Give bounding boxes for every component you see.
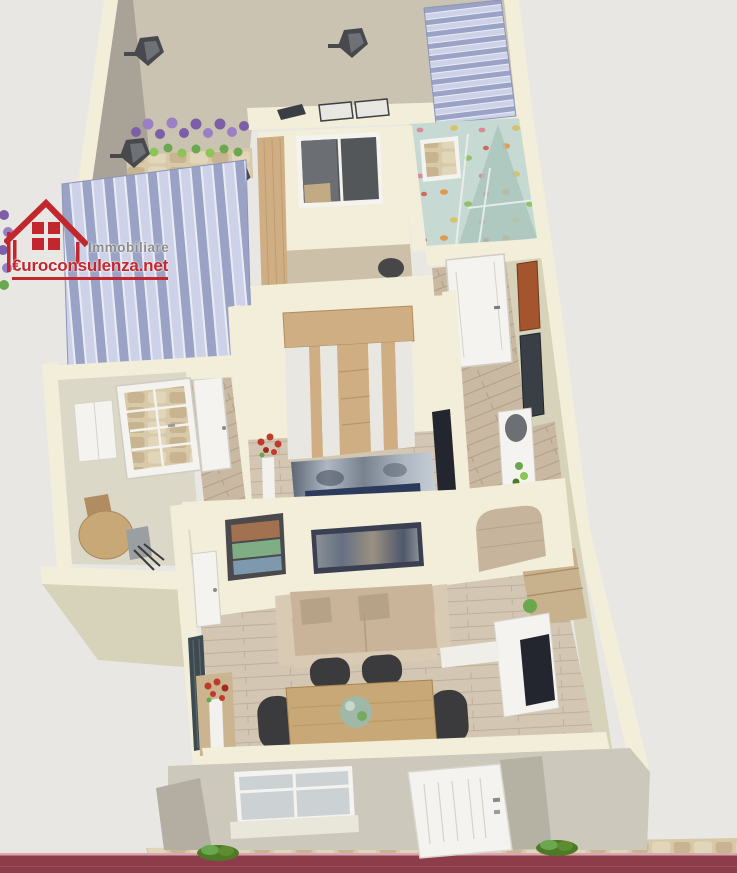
panoramic-picture-image — [316, 528, 419, 568]
table-centerpiece — [340, 696, 372, 728]
wardrobe-panel-white — [395, 341, 415, 449]
hall-picture-1 — [517, 261, 540, 331]
hall-plant-leaf — [520, 472, 528, 480]
floorplan-render: Immobiliare €uroconsulenza.net — [0, 0, 737, 873]
road-detail-line — [0, 866, 737, 867]
hall-picture-2 — [520, 333, 544, 418]
round-table — [79, 511, 133, 559]
small-bedroom-chair — [378, 258, 404, 278]
watermark-immobiliare: Immobiliare — [88, 240, 169, 255]
garden-bush — [536, 840, 578, 856]
wardrobe-panel-white — [285, 347, 312, 460]
hall-lamp — [505, 414, 527, 442]
front-door-handle — [493, 798, 500, 803]
master-flower-vase — [262, 457, 275, 499]
centerpiece-detail — [345, 701, 355, 711]
flower-pedestal — [209, 698, 224, 754]
window-view-furniture — [304, 183, 331, 203]
small-bedroom — [257, 126, 414, 303]
media-plant — [523, 599, 537, 613]
wardrobe-panel-white — [320, 345, 340, 457]
west-door-handle — [213, 588, 217, 592]
garden-bush — [197, 845, 239, 861]
hallway-arch — [456, 478, 574, 578]
centerpiece-leaf — [357, 711, 367, 721]
bathroom — [409, 118, 537, 249]
bed-marble-patch — [316, 470, 344, 486]
awning-top-right — [424, 0, 516, 124]
front-door-lock — [494, 810, 500, 815]
tv-screen — [520, 634, 555, 706]
wardrobe-top — [283, 306, 414, 348]
wardrobe-panel-wood — [381, 342, 398, 450]
road-strip — [0, 855, 737, 873]
entrance-door-handle — [494, 306, 500, 310]
bed-marble-patch — [383, 463, 407, 477]
front-facade — [156, 748, 650, 858]
hall-plant — [515, 462, 523, 470]
road-edge-line — [0, 853, 737, 856]
watermark-domain: €uroconsulenza.net — [12, 256, 168, 280]
sofa — [275, 584, 451, 668]
master-bedroom — [228, 290, 470, 508]
kitchen-cabinet — [74, 400, 117, 462]
bathroom-window-view — [424, 141, 457, 177]
corridor-door-handle — [222, 426, 226, 430]
floorplan-canvas — [0, 0, 737, 873]
watermark-logo: Immobiliare €uroconsulenza.net — [4, 196, 214, 288]
